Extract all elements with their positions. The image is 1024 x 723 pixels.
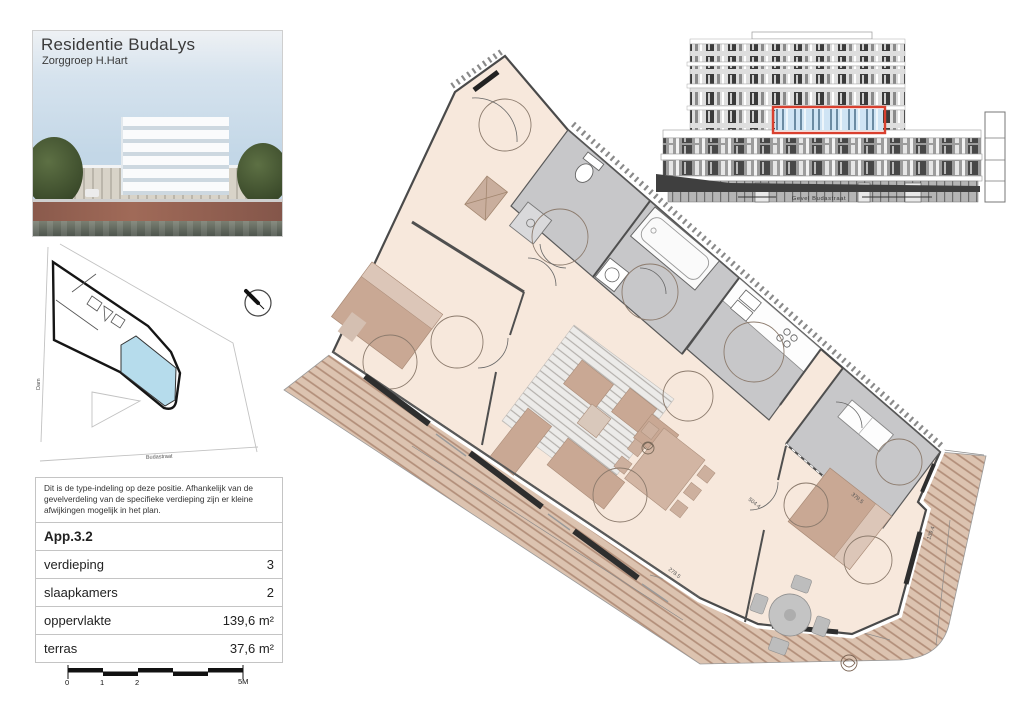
row-value: 139,6 m² [223, 613, 274, 628]
compass-icon [245, 290, 271, 316]
apartment-info-table: Dit is de type-indeling op deze positie.… [35, 477, 283, 663]
plan-sheet: Residentie BudaLys Zorggroep H.Hart [0, 0, 1024, 723]
project-title: Residentie BudaLys [41, 35, 195, 55]
tree-right [237, 143, 283, 205]
row-label: verdieping [44, 557, 104, 572]
street-label-dam: Dam [36, 378, 42, 390]
table-row: slaapkamers 2 [36, 578, 282, 606]
scale-bar: 0 1 2 5M [60, 650, 260, 695]
project-subtitle: Zorggroep H.Hart [42, 55, 128, 67]
table-row: oppervlakte 139,6 m² [36, 606, 282, 634]
street-label-budastraat: Budastraat [146, 454, 173, 461]
photo-water [33, 221, 282, 236]
scale-label: 0 [65, 678, 69, 687]
photo-building-tower [121, 117, 229, 195]
site-plan: Dam Budastraat [30, 240, 275, 475]
apartment-id: App.3.2 [44, 529, 93, 544]
scale-bar-segments [68, 668, 243, 676]
row-label: slaapkamers [44, 585, 118, 600]
apartment-id-row: App.3.2 [36, 522, 282, 550]
type-note: Dit is de type-indeling op deze positie.… [36, 478, 282, 522]
scale-label: 1 [100, 678, 104, 687]
project-photo: Residentie BudaLys Zorggroep H.Hart [32, 30, 283, 237]
photo-van [85, 189, 99, 197]
scale-label: 5M [238, 677, 248, 686]
row-label: oppervlakte [44, 613, 111, 628]
floor-plan: 504.4 379.5 278.5 139.4 [270, 40, 1024, 723]
table-row: verdieping 3 [36, 550, 282, 578]
scale-label: 2 [135, 678, 139, 687]
